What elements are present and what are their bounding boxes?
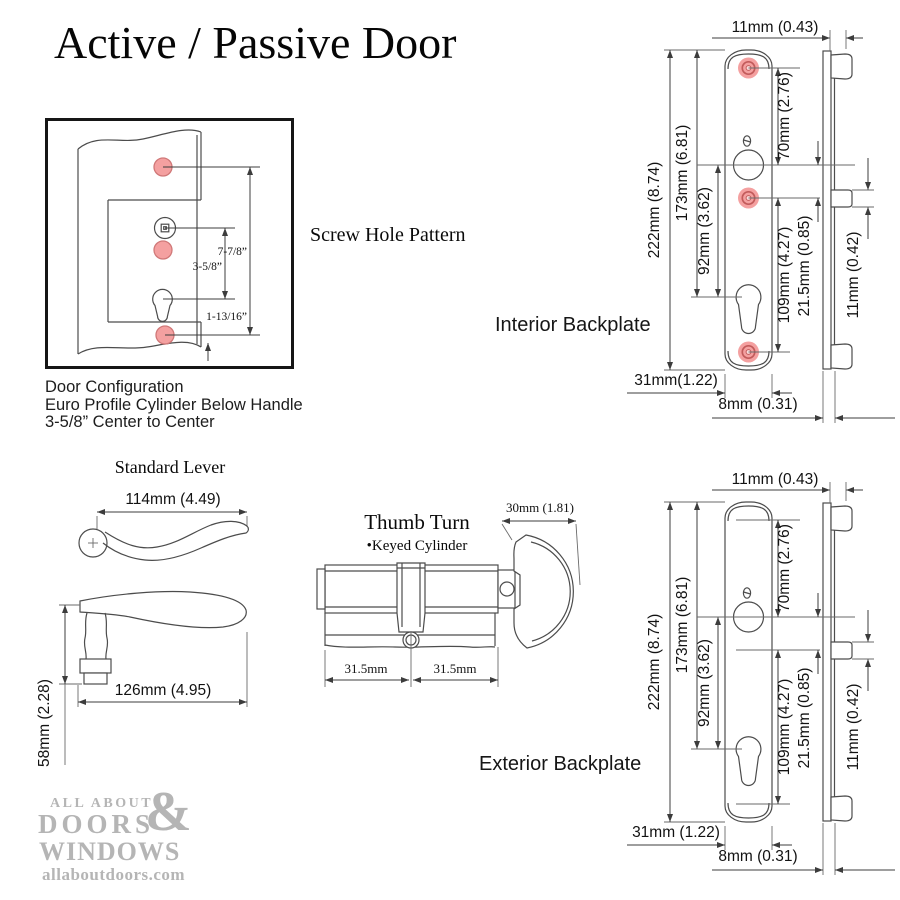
- interior-backplate-label: Interior Backplate: [495, 314, 651, 337]
- standard-lever-diagram: Standard Lever 114mm (4.49): [35, 455, 285, 775]
- dim-tab: 11mm (0.42): [845, 684, 862, 771]
- dim-thumb-width: 30mm (1.81): [506, 500, 574, 515]
- dim-screw-to-handle: 70mm (2.76): [776, 72, 793, 160]
- caption-line-2: Euro Profile Cylinder Below Handle: [45, 397, 303, 415]
- screw-hole-pattern-label: Screw Hole Pattern: [310, 224, 466, 247]
- thumb-turn-knob: [498, 535, 573, 648]
- dim-top-width: 11mm (0.43): [732, 471, 819, 488]
- page: Active / Passive Door: [0, 0, 900, 900]
- dim-thickness: 8mm (0.31): [718, 396, 797, 413]
- dim-handle-to-cylinder: 92mm (3.62): [696, 639, 713, 727]
- lever-top-view: [79, 521, 248, 560]
- dim-screw-span: 109mm (4.27): [776, 227, 793, 323]
- dim-overall: 222mm (8.74): [646, 162, 663, 258]
- logo-url: allaboutdoors.com: [42, 865, 185, 885]
- backplate-side-view: [823, 503, 852, 821]
- dim-label-center: 3-5/8”: [193, 261, 222, 273]
- interior-backplate-diagram: 11mm (0.43) 222mm (8.74) 173mm (6.81) 92…: [612, 3, 900, 428]
- dim-to-cylinder: 173mm (6.81): [674, 125, 691, 221]
- dim-screw-span: 109mm (4.27): [776, 679, 793, 775]
- door-configuration-caption: Door Configuration Euro Profile Cylinder…: [45, 379, 303, 432]
- logo: ALL ABOUT & DOORS WINDOWS allaboutdoors.…: [38, 792, 238, 887]
- dim-handle-to-screw: 21.5mm (0.85): [796, 216, 813, 317]
- dim-lever-side-length: 126mm (4.95): [115, 682, 211, 699]
- dim-thickness: 8mm (0.31): [718, 848, 797, 865]
- keyed-cylinder-label: •Keyed Cylinder: [367, 538, 468, 554]
- dim-lever-top-length: 114mm (4.49): [125, 491, 220, 508]
- exterior-backplate-label: Exterior Backplate: [479, 753, 641, 776]
- dim-right-half: 31.5mm: [434, 661, 477, 676]
- dim-plate-width: 31mm (1.22): [632, 824, 720, 841]
- dim-handle-to-cylinder: 92mm (3.62): [696, 187, 713, 275]
- dim-top-width: 11mm (0.43): [732, 19, 819, 36]
- dim-label-overall: 7-7/8”: [218, 246, 247, 258]
- cylinder-cam: [397, 563, 425, 632]
- thumb-turn-cylinder-diagram: Thumb Turn •Keyed Cylinder 30mm (1.81): [300, 495, 600, 700]
- dim-plate-width: 31mm(1.22): [634, 372, 718, 389]
- dim-left-half: 31.5mm: [345, 661, 388, 676]
- backplate-side-view: [823, 51, 852, 369]
- logo-line-2: DOORS: [38, 809, 154, 840]
- dim-screw-to-handle: 70mm (2.76): [776, 524, 793, 612]
- dim-tab: 11mm (0.42): [845, 232, 862, 319]
- dim-to-cylinder: 173mm (6.81): [674, 577, 691, 673]
- page-title: Active / Passive Door: [54, 16, 456, 69]
- exterior-backplate-diagram: 11mm (0.43) 222mm (8.74) 173mm (6.81) 92…: [612, 455, 900, 880]
- lever-side-view: [80, 591, 246, 684]
- thumb-turn-label: Thumb Turn: [364, 510, 470, 534]
- dimension-lines: [97, 512, 247, 529]
- caption-line-1: Door Configuration: [45, 379, 303, 397]
- caption-line-3: 3-5/8” Center to Center: [45, 414, 303, 432]
- dim-overall: 222mm (8.74): [646, 614, 663, 710]
- standard-lever-label: Standard Lever: [115, 457, 225, 477]
- dim-handle-to-screw: 21.5mm (0.85): [796, 668, 813, 769]
- dim-lever-height: 58mm (2.28): [36, 679, 53, 767]
- screw-hole-pattern-diagram: 7-7/8” 3-5/8” 1-13/16”: [45, 118, 295, 370]
- logo-line-3: WINDOWS: [39, 837, 180, 867]
- dim-label-bottom: 1-13/16”: [206, 311, 247, 323]
